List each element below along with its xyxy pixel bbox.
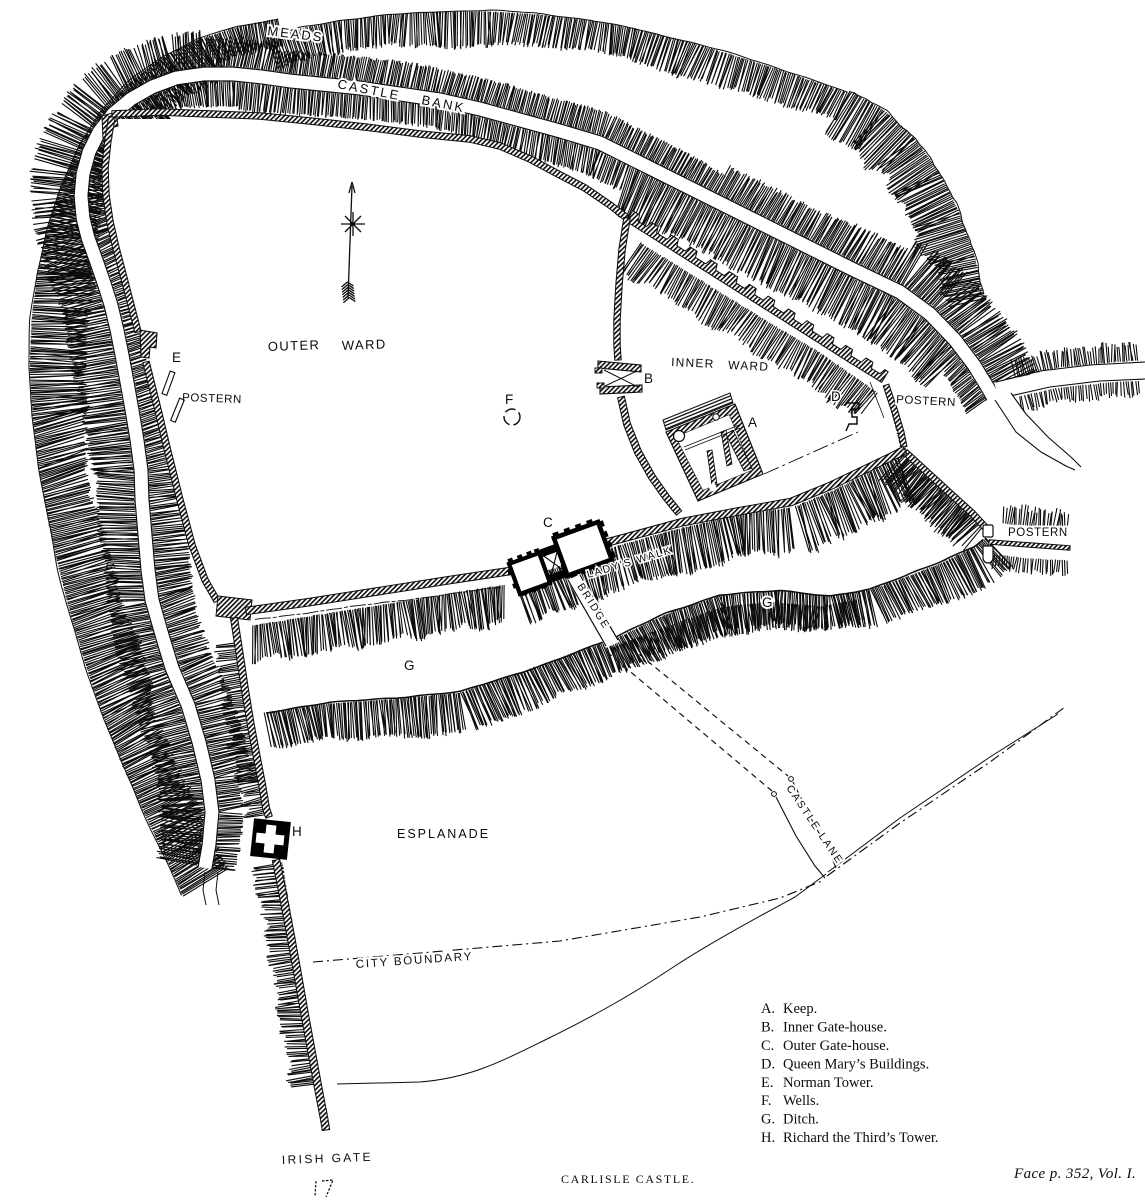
svg-text:Keep.: Keep. bbox=[783, 1001, 817, 1017]
svg-text:A.: A. bbox=[761, 1001, 775, 1017]
svg-text:F: F bbox=[505, 392, 516, 407]
svg-text:Wells.: Wells. bbox=[783, 1093, 819, 1109]
svg-text:ESPLANADE: ESPLANADE bbox=[397, 827, 490, 841]
svg-text:E.: E. bbox=[761, 1075, 773, 1091]
svg-text:C.: C. bbox=[761, 1038, 774, 1054]
svg-text:POSTERN: POSTERN bbox=[1008, 527, 1068, 539]
svg-text:Ditch.: Ditch. bbox=[783, 1112, 819, 1128]
svg-text:E: E bbox=[172, 350, 184, 365]
svg-text:Richard the Third’s Tower.: Richard the Third’s Tower. bbox=[783, 1130, 939, 1146]
svg-text:H: H bbox=[292, 824, 304, 839]
svg-text:Face p. 352, Vol. I.: Face p. 352, Vol. I. bbox=[1013, 1166, 1136, 1182]
svg-text:Norman Tower.: Norman Tower. bbox=[783, 1075, 874, 1091]
svg-text:POSTERN: POSTERN bbox=[182, 392, 242, 406]
svg-text:OUTER: OUTER bbox=[268, 337, 321, 354]
svg-text:B: B bbox=[644, 371, 656, 386]
svg-text:WARD: WARD bbox=[728, 358, 770, 374]
svg-text:D: D bbox=[831, 389, 843, 404]
svg-text:A: A bbox=[748, 415, 760, 430]
svg-text:G.: G. bbox=[761, 1112, 775, 1128]
svg-text:B.: B. bbox=[761, 1020, 774, 1036]
svg-text:D.: D. bbox=[761, 1056, 775, 1072]
svg-text:G: G bbox=[404, 658, 417, 673]
svg-text:Inner Gate-house.: Inner Gate-house. bbox=[783, 1020, 887, 1036]
svg-text:INNER: INNER bbox=[671, 355, 715, 371]
svg-text:Outer Gate-house.: Outer Gate-house. bbox=[783, 1038, 889, 1054]
svg-text:H.: H. bbox=[761, 1130, 775, 1146]
svg-text:WARD: WARD bbox=[342, 336, 387, 353]
svg-text:Queen Mary’s Buildings.: Queen Mary’s Buildings. bbox=[783, 1056, 929, 1072]
svg-text:C: C bbox=[543, 515, 555, 530]
svg-text:F.: F. bbox=[761, 1093, 772, 1109]
svg-text:CARLISLE CASTLE.: CARLISLE CASTLE. bbox=[561, 1172, 695, 1186]
svg-text:G: G bbox=[762, 595, 775, 610]
